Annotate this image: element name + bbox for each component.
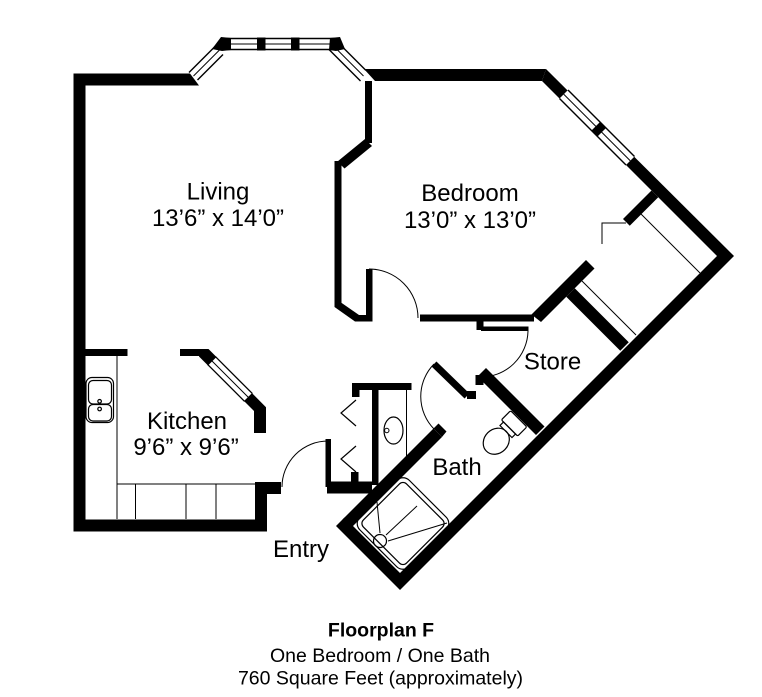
svg-text:Kitchen: Kitchen	[147, 408, 227, 435]
svg-text:Floorplan F: Floorplan F	[328, 620, 434, 642]
svg-text:Entry: Entry	[273, 536, 329, 563]
svg-text:9’6” x 9’6”: 9’6” x 9’6”	[133, 434, 238, 461]
svg-text:13’6” x 14’0”: 13’6” x 14’0”	[152, 205, 284, 232]
svg-text:Bath: Bath	[432, 454, 481, 481]
svg-text:Living: Living	[187, 179, 250, 206]
svg-text:13’0” x 13’0”: 13’0” x 13’0”	[404, 207, 536, 234]
svg-text:One Bedroom / One Bath: One Bedroom / One Bath	[270, 645, 490, 667]
svg-text:Bedroom: Bedroom	[421, 180, 518, 207]
svg-text:Store: Store	[524, 349, 581, 376]
svg-text:760 Square Feet (approximately: 760 Square Feet (approximately)	[238, 668, 523, 690]
